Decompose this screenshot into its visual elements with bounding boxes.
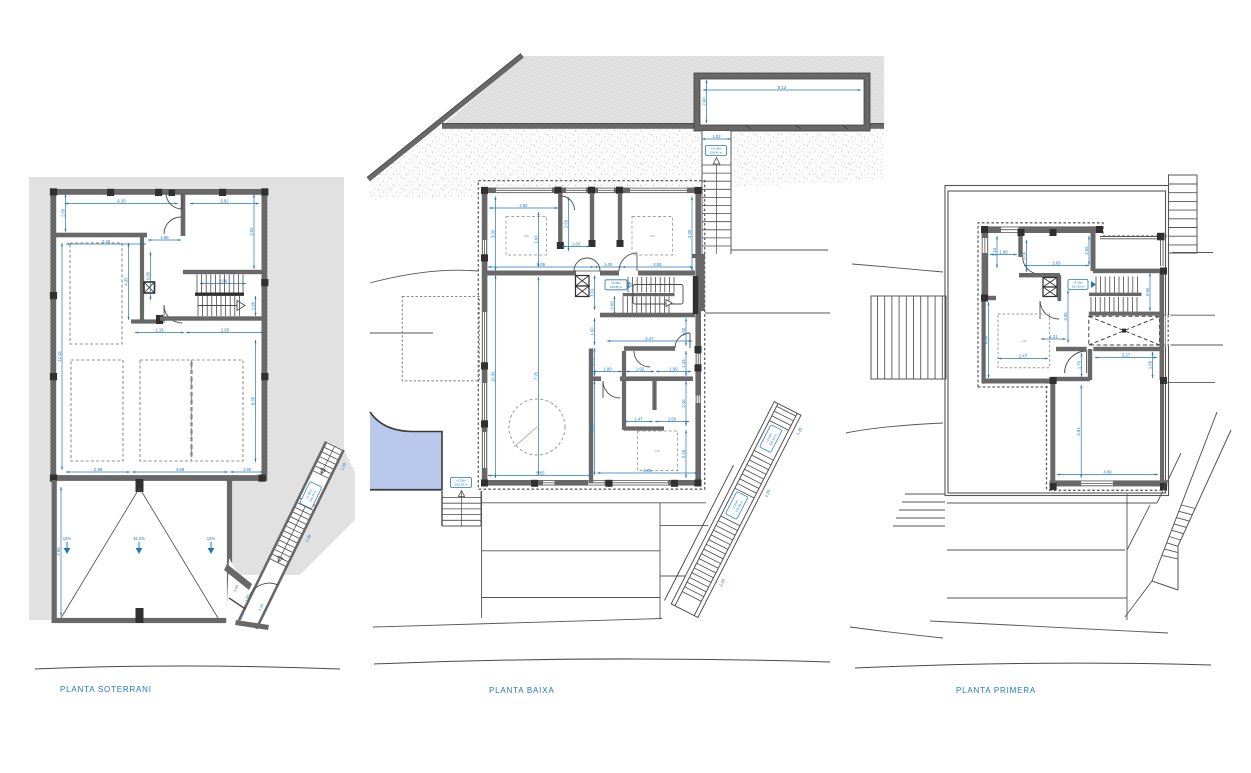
svg-text:1.02: 1.02 bbox=[712, 134, 721, 139]
svg-text:158.80 m: 158.80 m bbox=[610, 285, 623, 289]
svg-text:0.95: 0.95 bbox=[145, 271, 150, 280]
svg-text:2.05: 2.05 bbox=[643, 468, 652, 473]
svg-text:3.00: 3.00 bbox=[490, 229, 495, 238]
svg-text:15%: 15% bbox=[207, 536, 216, 541]
svg-text:2.86: 2.86 bbox=[219, 278, 228, 283]
svg-text:1.50: 1.50 bbox=[681, 327, 686, 336]
svg-text:4.91: 4.91 bbox=[1076, 427, 1081, 436]
svg-text:7.96: 7.96 bbox=[56, 547, 61, 556]
svg-text:4.35: 4.35 bbox=[123, 277, 128, 286]
svg-text:2.40: 2.40 bbox=[701, 97, 706, 106]
svg-text:3.27: 3.27 bbox=[1122, 352, 1131, 357]
svg-text:2.56: 2.56 bbox=[563, 219, 568, 228]
svg-text:1.99: 1.99 bbox=[603, 366, 612, 371]
svg-text:1.66: 1.66 bbox=[1021, 251, 1026, 260]
svg-text:2.40: 2.40 bbox=[681, 399, 686, 408]
svg-text:2.92: 2.92 bbox=[519, 203, 528, 208]
svg-text:5.10: 5.10 bbox=[589, 423, 594, 432]
svg-text:5.05: 5.05 bbox=[536, 470, 545, 475]
svg-text:1.60: 1.60 bbox=[589, 327, 594, 336]
svg-text:158.45 m: 158.45 m bbox=[710, 151, 723, 155]
svg-text:2.55: 2.55 bbox=[653, 262, 662, 267]
svg-text:1.45: 1.45 bbox=[681, 359, 686, 368]
svg-text:1.96: 1.96 bbox=[250, 301, 255, 310]
svg-text:1.60: 1.60 bbox=[1021, 339, 1027, 343]
svg-text:2.65: 2.65 bbox=[221, 327, 230, 332]
svg-text:1.00: 1.00 bbox=[523, 234, 529, 238]
svg-text:1.66: 1.66 bbox=[1147, 360, 1152, 369]
svg-text:1.00: 1.00 bbox=[654, 449, 660, 453]
svg-text:12.15: 12.15 bbox=[57, 351, 62, 362]
svg-text:1.60: 1.60 bbox=[572, 241, 581, 246]
svg-text:3.00: 3.00 bbox=[249, 227, 254, 236]
svg-text:1.70: 1.70 bbox=[1076, 360, 1081, 369]
svg-text:PLANTA BAIXA: PLANTA BAIXA bbox=[489, 686, 554, 695]
svg-text:2.47: 2.47 bbox=[645, 336, 654, 341]
svg-text:4.00: 4.00 bbox=[983, 335, 988, 344]
svg-text:2.66: 2.66 bbox=[1084, 246, 1089, 255]
svg-text:7.25: 7.25 bbox=[533, 371, 538, 380]
svg-text:2.98: 2.98 bbox=[94, 467, 103, 472]
svg-text:1.99: 1.99 bbox=[669, 366, 678, 371]
svg-text:4.99: 4.99 bbox=[1103, 469, 1112, 474]
svg-text:0.60: 0.60 bbox=[609, 301, 614, 310]
svg-text:156.90 m: 156.90 m bbox=[455, 483, 468, 487]
svg-text:2.46: 2.46 bbox=[681, 449, 686, 458]
svg-text:1.47: 1.47 bbox=[634, 416, 643, 421]
svg-text:6.30: 6.30 bbox=[117, 198, 126, 203]
svg-text:2.15: 2.15 bbox=[155, 327, 164, 332]
svg-text:1.85: 1.85 bbox=[160, 235, 169, 240]
svg-text:1.93: 1.93 bbox=[533, 235, 538, 244]
svg-text:2.65: 2.65 bbox=[1052, 260, 1061, 265]
svg-text:2.20: 2.20 bbox=[102, 239, 111, 244]
svg-text:1.60: 1.60 bbox=[668, 416, 677, 421]
svg-text:PLANTA SOTERRANI: PLANTA SOTERRANI bbox=[60, 685, 152, 694]
svg-text:2.00: 2.00 bbox=[60, 208, 65, 217]
svg-text:1.00: 1.00 bbox=[649, 234, 655, 238]
svg-text:1.40: 1.40 bbox=[604, 262, 613, 267]
svg-text:15.2%: 15.2% bbox=[133, 536, 145, 541]
svg-text:1.21: 1.21 bbox=[1049, 334, 1058, 339]
svg-text:1.55: 1.55 bbox=[589, 357, 594, 366]
svg-text:2.47: 2.47 bbox=[1019, 353, 1028, 358]
svg-text:1.92: 1.92 bbox=[636, 366, 645, 371]
svg-text:15%: 15% bbox=[63, 536, 72, 541]
svg-text:PLANTA PRIMERA: PLANTA PRIMERA bbox=[956, 686, 1036, 695]
svg-text:3.01: 3.01 bbox=[589, 288, 594, 297]
svg-text:1.90: 1.90 bbox=[243, 467, 252, 472]
svg-text:161.60 m: 161.60 m bbox=[1072, 285, 1085, 289]
svg-text:3.00: 3.00 bbox=[687, 229, 692, 238]
svg-text:1.80: 1.80 bbox=[999, 249, 1008, 254]
svg-text:3.88: 3.88 bbox=[176, 467, 185, 472]
svg-text:10.30: 10.30 bbox=[490, 371, 495, 382]
svg-text:0.90: 0.90 bbox=[1145, 287, 1150, 296]
svg-text:3.92: 3.92 bbox=[220, 198, 229, 203]
svg-text:8.12: 8.12 bbox=[778, 85, 787, 90]
svg-text:8.35: 8.35 bbox=[250, 396, 255, 405]
svg-text:3.55: 3.55 bbox=[1063, 312, 1068, 321]
